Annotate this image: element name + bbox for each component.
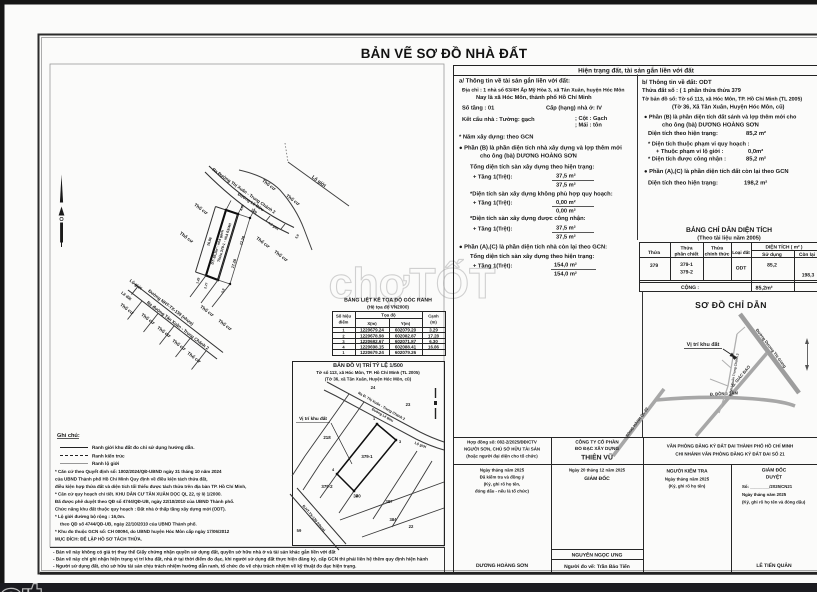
svg-text:(Tờ 36, xã Tân Xuân, Huyện Hóc: (Tờ 36, xã Tân Xuân, Huyện Hóc Môn, cũ) — [325, 377, 412, 382]
svg-text:GIÁM ĐỐC: GIÁM ĐỐC — [584, 475, 610, 482]
svg-text:602088.41: 602088.41 — [395, 345, 417, 350]
svg-text:- Bản vẽ này không có giá trị: - Bản vẽ này không có giá trị thay thế G… — [53, 549, 336, 555]
svg-text:b/ Thông tin về đất: ODT: b/ Thông tin về đất: ODT — [642, 79, 712, 86]
svg-text:X(m): X(m) — [367, 321, 377, 326]
svg-text:Sử dụng: Sử dụng — [762, 252, 782, 258]
svg-text:Cạnh: Cạnh — [428, 314, 439, 319]
svg-text:a/ Thông tin về tài sản gắn li: a/ Thông tin về tài sản gắn liền với đất… — [459, 77, 570, 85]
svg-text:cho ông (bà) DƯƠNG HOÀNG SƠN: cho ông (bà) DƯƠNG HOÀNG SƠN — [662, 121, 759, 129]
svg-text:● Phần (A),(C) là phần diện t: ● Phần (A),(C) là phần diện tích nhà còn… — [459, 244, 607, 251]
svg-text:3: 3 — [399, 440, 401, 444]
svg-text:Cấp (hạng) nhà ở: IV: Cấp (hạng) nhà ở: IV — [546, 105, 602, 112]
svg-text:Số tầng : 01: Số tầng : 01 — [462, 105, 494, 112]
svg-text:379-1: 379-1 — [680, 262, 693, 268]
svg-text:* Lộ giới đường bộ rộng : 16,0: * Lộ giới đường bộ rộng : 16,0m. — [55, 514, 125, 519]
svg-text:* Căn cứ quy hoạch chi tiết. K: * Căn cứ quy hoạch chi tiết. KHU DÂN CƯ … — [55, 491, 222, 497]
svg-text:59: 59 — [297, 528, 302, 533]
svg-text:NGUYỄN NGỌC ƯNG: NGUYỄN NGỌC ƯNG — [572, 552, 623, 559]
svg-text:Y(m): Y(m) — [401, 321, 411, 326]
svg-text:+ Tầng 1(Trệt):: + Tầng 1(Trệt): — [473, 200, 512, 207]
svg-text:+ Thuộc phạm vi lộ giới :: + Thuộc phạm vi lộ giới : — [656, 148, 724, 155]
svg-text:(Ký, ghi rõ họ tên): (Ký, ghi rõ họ tên) — [669, 484, 706, 489]
svg-text:85,2 m²: 85,2 m² — [746, 130, 766, 137]
svg-text:MỤC ĐÍCH: ĐỂ LẬP HỒ SƠ TÁCH TH: MỤC ĐÍCH: ĐỂ LẬP HỒ SƠ TÁCH THỬA. — [55, 536, 142, 542]
svg-text:Đã kiểm tra và đồng ý: Đã kiểm tra và đồng ý — [480, 475, 525, 480]
svg-text:Còn lại: Còn lại — [799, 252, 815, 258]
svg-text:1220678.98: 1220678.98 — [360, 333, 384, 338]
svg-text:Nay là xã Hóc Môn, thành phố H: Nay là xã Hóc Môn, thành phố Hồ Chí Minh — [476, 94, 592, 101]
svg-text:602079.26: 602079.26 — [395, 350, 417, 355]
svg-text:37,5 m²: 37,5 m² — [556, 174, 576, 180]
svg-text:ĐO ĐẠC XÂY DỰNG: ĐO ĐẠC XÂY DỰNG — [575, 445, 619, 451]
svg-text:198,2 m²: 198,2 m² — [744, 180, 767, 187]
svg-text:* Năm xây dựng: theo GCN: * Năm xây dựng: theo GCN — [459, 134, 533, 141]
svg-text:0,0m²: 0,0m² — [748, 148, 763, 155]
svg-text:602079.20: 602079.20 — [395, 328, 417, 333]
svg-text:đóng dấu - nếu là tổ chức): đóng dấu - nếu là tổ chức) — [475, 489, 530, 494]
svg-text:Số: ________/2025/CN21: Số: ________/2025/CN21 — [742, 484, 793, 489]
svg-text:37,5 m²: 37,5 m² — [556, 183, 576, 189]
svg-text:● Phần (B) là phần diện tích n: ● Phần (B) là phần diện tích nhà xây dựn… — [459, 145, 622, 152]
svg-text:* Khu đo thuộc GCN số: CH 0009: * Khu đo thuộc GCN số: CH 00094, do UBND… — [55, 529, 230, 534]
svg-text:BẢN VẼ SƠ ĐỒ NHÀ ĐẤT: BẢN VẼ SƠ ĐỒ NHÀ ĐẤT — [361, 46, 528, 61]
svg-text:GIÁM ĐỐC: GIÁM ĐỐC — [762, 467, 787, 474]
svg-text:Loại đất: Loại đất — [732, 250, 750, 255]
svg-text:Địa chỉ : 1 nhà số 63/4H Ấp Mỹ: Địa chỉ : 1 nhà số 63/4H Ấp Mỹ Hòa 3, xã… — [462, 87, 624, 94]
svg-text:Thửa đất số : ( 1 phần thửa t: Thửa đất số : ( 1 phần thửa thửa 379 — [642, 87, 741, 94]
svg-text:(m): (m) — [430, 320, 437, 325]
svg-text:điểm: điểm — [339, 320, 349, 325]
svg-text:1220682.67: 1220682.67 — [360, 339, 384, 344]
svg-text:380: 380 — [353, 494, 361, 499]
svg-text:*Diện tích sàn xây dựng không: *Diện tích sàn xây dựng không phù hợp qu… — [470, 191, 613, 198]
svg-text:; Mái : tôn: ; Mái : tôn — [575, 122, 602, 129]
svg-text:(hoặc người đại diện cho tổ ch: (hoặc người đại diện cho tổ chức) — [466, 454, 538, 459]
svg-text:*Diện tích sàn xây dựng được c: *Diện tích sàn xây dựng được công nhận: — [470, 215, 586, 222]
svg-text:22: 22 — [409, 524, 414, 529]
svg-text:DUYỆT: DUYỆT — [766, 474, 782, 481]
svg-text:3.29: 3.29 — [429, 328, 438, 333]
svg-text:Thửa: Thửa — [648, 250, 660, 256]
svg-text:CÔNG TY CỔ PHẦN: CÔNG TY CỔ PHẦN — [575, 439, 619, 445]
svg-text:1220679.24: 1220679.24 — [360, 328, 384, 333]
svg-text:1220698.15: 1220698.15 — [360, 345, 384, 350]
svg-text:Hiện trạng đất, tài sản gắn li: Hiện trạng đất, tài sản gắn liền với đất — [578, 66, 695, 74]
svg-text:- Người sử dụng đất, chủ sở hữ: - Người sử dụng đất, chủ sở hữu tài sản … — [53, 563, 356, 569]
svg-text:DIỆN TÍCH ( m² ): DIỆN TÍCH ( m² ) — [765, 244, 802, 251]
svg-text:Diện tích theo hiện trạng:: Diện tích theo hiện trạng: — [648, 130, 718, 137]
svg-text:* Diện tích thuộc phạm vi quy: * Diện tích thuộc phạm vi quy hoạch : — [648, 141, 750, 148]
svg-text:16.86: 16.86 — [428, 345, 440, 350]
svg-text:379: 379 — [650, 263, 659, 269]
svg-text:379-1: 379-1 — [361, 454, 373, 459]
svg-text:Tờ số 113, xã Hóc Môn, TP. Hồ: Tờ số 113, xã Hóc Môn, TP. Hồ Chí Minh (… — [316, 370, 420, 375]
svg-text:CHI NHÁNH VĂN PHÒNG ĐĂNG KÝ ĐẤ: CHI NHÁNH VĂN PHÒNG ĐĂNG KÝ ĐẤT ĐAI SỐ 2… — [675, 451, 785, 457]
svg-text:THIÊN VŨ: THIÊN VŨ — [581, 453, 613, 462]
svg-text:+ Tầng 1(Trệt):: + Tầng 1(Trệt): — [473, 263, 512, 270]
svg-text:Vị trí khu đất: Vị trí khu đất — [299, 416, 327, 421]
svg-text:Ghi chú:: Ghi chú: — [57, 432, 80, 439]
svg-text:Ngày tháng năm 2025: Ngày tháng năm 2025 — [665, 477, 710, 482]
svg-text:379-2: 379-2 — [321, 484, 333, 489]
svg-text:Ngày tháng năm 2025: Ngày tháng năm 2025 — [480, 468, 525, 473]
svg-text:(Hệ tọa độ VN2000): (Hệ tọa độ VN2000) — [367, 305, 409, 310]
svg-text:* Diện tích được công nhận :: * Diện tích được công nhận : — [648, 156, 726, 163]
svg-text:37,5 m²: 37,5 m² — [556, 235, 576, 241]
svg-text:Hợp đồng số: 082-2/2025/ĐĐ/CTV: Hợp đồng số: 082-2/2025/ĐĐ/CTV — [467, 440, 537, 445]
svg-text:17.28: 17.28 — [428, 333, 440, 338]
svg-text:DƯƠNG HOÀNG SƠN: DƯƠNG HOÀNG SƠN — [476, 562, 529, 569]
svg-text:1220679.24: 1220679.24 — [360, 350, 384, 355]
svg-text:85,2 m²: 85,2 m² — [746, 156, 766, 163]
svg-text:Đã được phê duyệt theo QĐ số 4: Đã được phê duyệt theo QĐ số 4744/QĐ-UB,… — [55, 499, 234, 504]
svg-text:Tổng diện tích sàn xây dựng th: Tổng diện tích sàn xây dựng theo hiện tr… — [470, 164, 594, 171]
svg-text:379-2: 379-2 — [680, 270, 693, 276]
svg-text:Người đo vẽ: Trần Bảo Tiến: Người đo vẽ: Trần Bảo Tiến — [564, 564, 630, 570]
svg-text:cho ông (bà) DƯƠNG HOÀNG SƠN: cho ông (bà) DƯƠNG HOÀNG SƠN — [480, 152, 577, 160]
svg-text:Vị trí khu đất: Vị trí khu đất — [687, 341, 720, 348]
svg-text:của UBND Thành phố Hồ Chí Minh: của UBND Thành phố Hồ Chí Minh Quy định … — [55, 477, 208, 482]
svg-text:387: 387 — [386, 499, 394, 504]
svg-text:điều kiện hợp thửa đất và diện: điều kiện hợp thửa đất và diện tích tối … — [55, 484, 246, 489]
svg-text:* Căn cứ theo Quyết định số: 1: * Căn cứ theo Quyết định số: 1002/2024/Q… — [55, 469, 222, 474]
svg-text:Thửa: Thửa — [680, 246, 692, 252]
svg-text:CỘNG :: CỘNG : — [681, 284, 699, 291]
svg-text:Tờ bản đồ số: Tờ số 113, xã H: Tờ bản đồ số: Tờ số 113, xã Hóc Môn, TP.… — [642, 96, 802, 103]
svg-text:BẢNG CHỈ DẪN DIỆN TÍCH: BẢNG CHỈ DẪN DIỆN TÍCH — [686, 225, 772, 234]
svg-text:ODT: ODT — [736, 266, 747, 272]
svg-text:LÊ TIẾN QUÂN: LÊ TIẾN QUÂN — [756, 562, 792, 569]
svg-text:(Ký, ghi rõ họ tên và đóng dấu: (Ký, ghi rõ họ tên và đóng dấu) — [742, 500, 806, 505]
svg-text:Tọa độ: Tọa độ — [381, 313, 396, 318]
svg-text:● Phần (A),(C) là phần diện t: ● Phần (A),(C) là phần diện tích đất còn… — [644, 168, 789, 175]
svg-text:phân chiết: phân chiết — [675, 252, 699, 258]
svg-text:theo QĐ số 4744/QĐ-UB, ngày 22: theo QĐ số 4744/QĐ-UB, ngày 22/10/2010 c… — [60, 522, 197, 527]
svg-text:Ngày tháng năm 2025: Ngày tháng năm 2025 — [742, 492, 787, 497]
svg-text:154,0 m²: 154,0 m² — [554, 263, 577, 269]
svg-text:Thửa: Thửa — [711, 246, 723, 252]
svg-text:; Cột : Gạch: ; Cột : Gạch — [575, 115, 608, 122]
svg-text:Diện tích theo hiện trạng:: Diện tích theo hiện trạng: — [648, 180, 718, 187]
svg-text:Ranh giới khu đất đo chỉ sử dụ: Ranh giới khu đất đo chỉ sử dụng hướng d… — [92, 444, 195, 450]
svg-text:Ngày 20 tháng 12 năm 202: Ngày 20 tháng 12 năm 2025 — [569, 468, 626, 473]
svg-text:VĂN PHÒNG ĐĂNG KÝ ĐẤT ĐAI THÀN: VĂN PHÒNG ĐĂNG KÝ ĐẤT ĐAI THÀNH PHỐ HỒ C… — [667, 443, 794, 449]
svg-text:NGƯỜI KIỂM TRA: NGƯỜI KIỂM TRA — [666, 468, 708, 475]
svg-text:37,5 m²: 37,5 m² — [556, 226, 576, 232]
svg-text:Số hiệu: Số hiệu — [336, 314, 352, 319]
svg-text:BẢN ĐỒ VỊ TRÍ TỶ LỆ 1/500: BẢN ĐỒ VỊ TRÍ TỶ LỆ 1/500 — [333, 362, 403, 369]
svg-text:Kết cấu nhà : Tường: gạch: Kết cấu nhà : Tường: gạch — [462, 116, 535, 123]
svg-text:+ Tầng 1(Trệt):: + Tầng 1(Trệt): — [473, 226, 512, 233]
svg-text:chính thức: chính thức — [705, 252, 730, 258]
svg-text:Ranh kiến trúc: Ranh kiến trúc — [92, 454, 125, 459]
svg-text:● Phần (B) là phần diện tích đ: ● Phần (B) là phần diện tích đất sánh và… — [644, 114, 797, 121]
svg-text:BẢNG LIỆT KÊ TỌA ĐỘ GÓC RANH: BẢNG LIỆT KÊ TỌA ĐỘ GÓC RANH — [344, 297, 432, 304]
svg-text:6.30: 6.30 — [429, 339, 438, 344]
svg-text:85,2m²: 85,2m² — [755, 286, 772, 292]
svg-text:ợt: ợt — [0, 573, 42, 592]
svg-text:- Bản vẽ này chỉ ghi nhận hiện: - Bản vẽ này chỉ ghi nhận hiện trạng vị … — [53, 557, 428, 562]
svg-text:Chức năng khu đất thuộc quy ho: Chức năng khu đất thuộc quy hoạch : Đất … — [55, 507, 226, 512]
svg-text:1: 1 — [373, 417, 375, 421]
svg-text:(Tờ 36, Xã Tân Xuân, Huyện Hóc: (Tờ 36, Xã Tân Xuân, Huyện Hóc Môn, cũ) — [672, 104, 785, 111]
svg-text:+ Tầng 1(Trệt):: + Tầng 1(Trệt): — [473, 174, 512, 181]
svg-text:85,2: 85,2 — [767, 263, 777, 269]
svg-text:(Theo tài liệu năm 2005): (Theo tài liệu năm 2005) — [697, 235, 761, 242]
svg-text:NGƯỜI SƠN, CHỦ SỞ HỮU TÀI SẢN: NGƯỜI SƠN, CHỦ SỞ HỮU TÀI SẢN — [464, 447, 540, 452]
svg-text:602071.87: 602071.87 — [395, 339, 417, 344]
svg-text:Ranh lộ giới: Ranh lộ giới — [92, 461, 119, 466]
svg-text:198,3: 198,3 — [802, 273, 815, 279]
svg-text:Tổng diện tích sàn xây dựng th: Tổng diện tích sàn xây dựng theo hiện tr… — [470, 253, 594, 260]
svg-text:154,0 m²: 154,0 m² — [554, 272, 577, 278]
svg-text:SƠ ĐỒ CHỈ DẪN: SƠ ĐỒ CHỈ DẪN — [695, 300, 767, 310]
svg-text:(Ký, ghi rõ họ tên,: (Ký, ghi rõ họ tên, — [484, 482, 521, 487]
svg-text:23: 23 — [406, 402, 411, 407]
svg-text:602082.87: 602082.87 — [395, 333, 417, 338]
svg-text:384: 384 — [390, 517, 398, 522]
svg-text:218: 218 — [323, 435, 331, 440]
svg-text:0,00 m²: 0,00 m² — [556, 209, 576, 215]
svg-text:24: 24 — [371, 385, 376, 390]
svg-text:0,00 m²: 0,00 m² — [556, 200, 576, 206]
